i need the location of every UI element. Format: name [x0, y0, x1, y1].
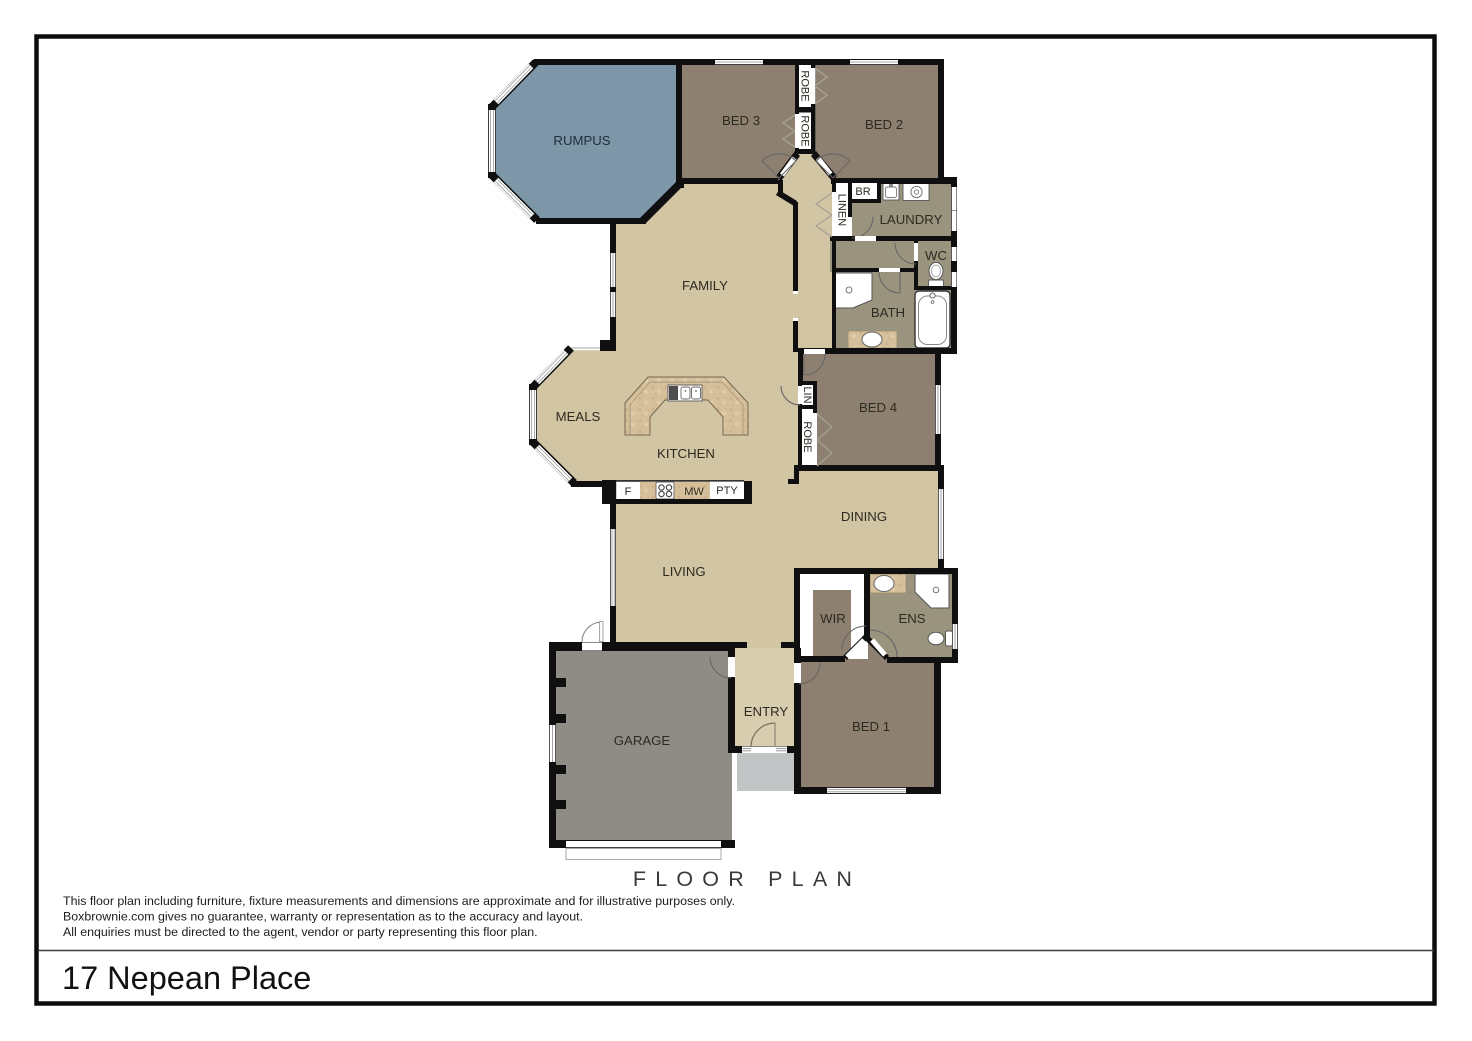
svg-text:BATH: BATH — [871, 305, 905, 320]
svg-text:BR: BR — [855, 186, 870, 198]
svg-text:ROBE: ROBE — [801, 421, 813, 452]
svg-text:ROBE: ROBE — [799, 70, 811, 101]
svg-text:FLOOR PLAN: FLOOR PLAN — [633, 867, 861, 891]
svg-text:ROBE: ROBE — [799, 115, 811, 146]
svg-text:PTY: PTY — [716, 485, 738, 497]
svg-text:This floor plan including furn: This floor plan including furniture, fix… — [63, 894, 735, 908]
svg-text:WIR: WIR — [820, 611, 846, 626]
svg-text:MEALS: MEALS — [556, 409, 601, 424]
svg-text:LIVING: LIVING — [662, 564, 705, 579]
svg-text:RUMPUS: RUMPUS — [553, 133, 610, 148]
svg-text:LINEN: LINEN — [836, 194, 848, 226]
svg-text:ENTRY: ENTRY — [744, 704, 789, 719]
svg-text:BED 3: BED 3 — [722, 113, 760, 128]
svg-text:LIN: LIN — [801, 386, 813, 403]
svg-text:ENS: ENS — [898, 611, 925, 626]
svg-text:LAUNDRY: LAUNDRY — [880, 212, 943, 227]
svg-text:DINING: DINING — [841, 509, 887, 524]
svg-text:KITCHEN: KITCHEN — [657, 446, 715, 461]
svg-text:All enquiries must be directed: All enquiries must be directed to the ag… — [63, 925, 538, 939]
svg-text:BED 1: BED 1 — [852, 719, 890, 734]
svg-text:F: F — [625, 486, 632, 498]
svg-text:MW: MW — [684, 486, 704, 498]
svg-text:Boxbrownie.com gives no guaran: Boxbrownie.com gives no guarantee, warra… — [63, 910, 583, 924]
svg-text:WC: WC — [925, 248, 947, 263]
svg-text:17 Nepean Place: 17 Nepean Place — [62, 960, 311, 996]
svg-text:BED 4: BED 4 — [859, 400, 897, 415]
svg-text:BED 2: BED 2 — [865, 117, 903, 132]
svg-text:FAMILY: FAMILY — [682, 278, 728, 293]
svg-text:GARAGE: GARAGE — [614, 733, 671, 748]
